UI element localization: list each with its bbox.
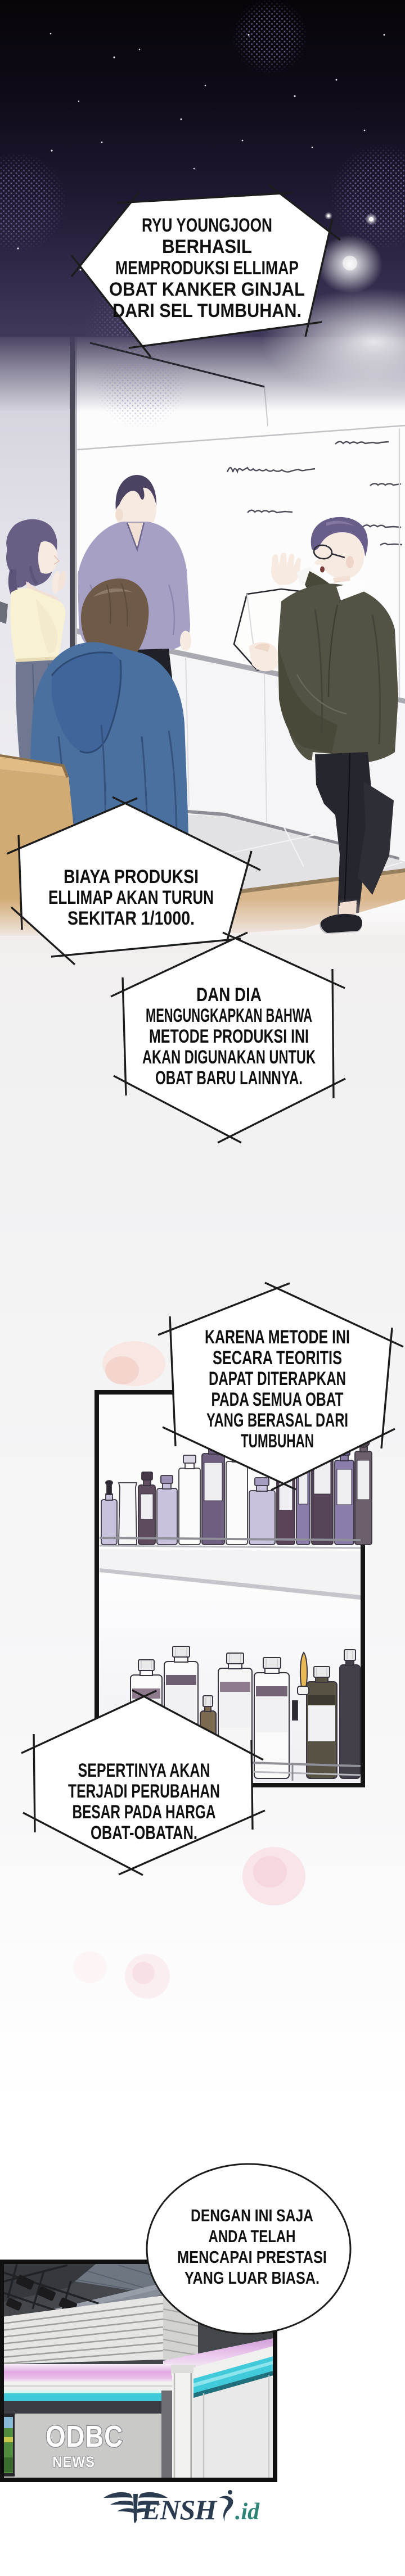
- svg-text:PADA SEMUA OBAT: PADA SEMUA OBAT: [211, 1389, 344, 1410]
- svg-text:ENSH: ENSH: [141, 2494, 218, 2525]
- svg-text:RYU YOUNGJOON: RYU YOUNGJOON: [142, 215, 272, 236]
- svg-text:DAPAT DITERAPKAN: DAPAT DITERAPKAN: [209, 1368, 346, 1389]
- svg-text:DAN DIA: DAN DIA: [196, 984, 262, 1006]
- svg-text:ODBC: ODBC: [46, 2420, 123, 2453]
- svg-text:MENCAPAI PRESTASI: MENCAPAI PRESTASI: [177, 2247, 327, 2267]
- svg-text:.id: .id: [235, 2499, 260, 2525]
- svg-text:YANG LUAR BIASA.: YANG LUAR BIASA.: [184, 2268, 319, 2288]
- svg-text:ANDA TELAH: ANDA TELAH: [209, 2226, 296, 2246]
- svg-text:AKAN DIGUNAKAN UNTUK: AKAN DIGUNAKAN UNTUK: [142, 1047, 316, 1068]
- svg-text:OBAT BARU LAINNYA.: OBAT BARU LAINNYA.: [155, 1067, 303, 1089]
- svg-text:KARENA METODE INI: KARENA METODE INI: [205, 1327, 350, 1348]
- svg-text:SEKITAR 1/1000.: SEKITAR 1/1000.: [67, 908, 195, 929]
- svg-text:BERHASIL: BERHASIL: [162, 236, 252, 257]
- svg-text:SEPERTINYA AKAN: SEPERTINYA AKAN: [78, 1760, 210, 1781]
- svg-text:MENGUNGKAPKAN BAHWA: MENGUNGKAPKAN BAHWA: [146, 1005, 312, 1026]
- svg-text:DARI SEL TUMBUHAN.: DARI SEL TUMBUHAN.: [112, 300, 301, 322]
- svg-text:DENGAN INI SAJA: DENGAN INI SAJA: [191, 2206, 313, 2225]
- svg-text:SECARA TEORITIS: SECARA TEORITIS: [213, 1347, 342, 1369]
- svg-text:BIAYA PRODUKSI: BIAYA PRODUKSI: [64, 866, 199, 888]
- svg-text:YANG BERASAL DARI: YANG BERASAL DARI: [206, 1410, 348, 1431]
- svg-text:TERJADI PERUBAHAN: TERJADI PERUBAHAN: [68, 1781, 220, 1802]
- svg-text:TUMBUHAN: TUMBUHAN: [241, 1430, 314, 1452]
- svg-text:MEMPRODUKSI ELLIMAP: MEMPRODUKSI ELLIMAP: [115, 257, 299, 279]
- svg-text:OBAT-OBATAN.: OBAT-OBATAN.: [91, 1822, 197, 1844]
- svg-text:NEWS: NEWS: [52, 2453, 95, 2470]
- svg-text:ELLIMAP AKAN TURUN: ELLIMAP AKAN TURUN: [48, 887, 214, 908]
- svg-text:METODE PRODUKSI INI: METODE PRODUKSI INI: [149, 1026, 309, 1047]
- svg-text:OBAT KANKER GINJAL: OBAT KANKER GINJAL: [109, 279, 305, 300]
- svg-text:BESAR PADA HARGA: BESAR PADA HARGA: [73, 1801, 216, 1823]
